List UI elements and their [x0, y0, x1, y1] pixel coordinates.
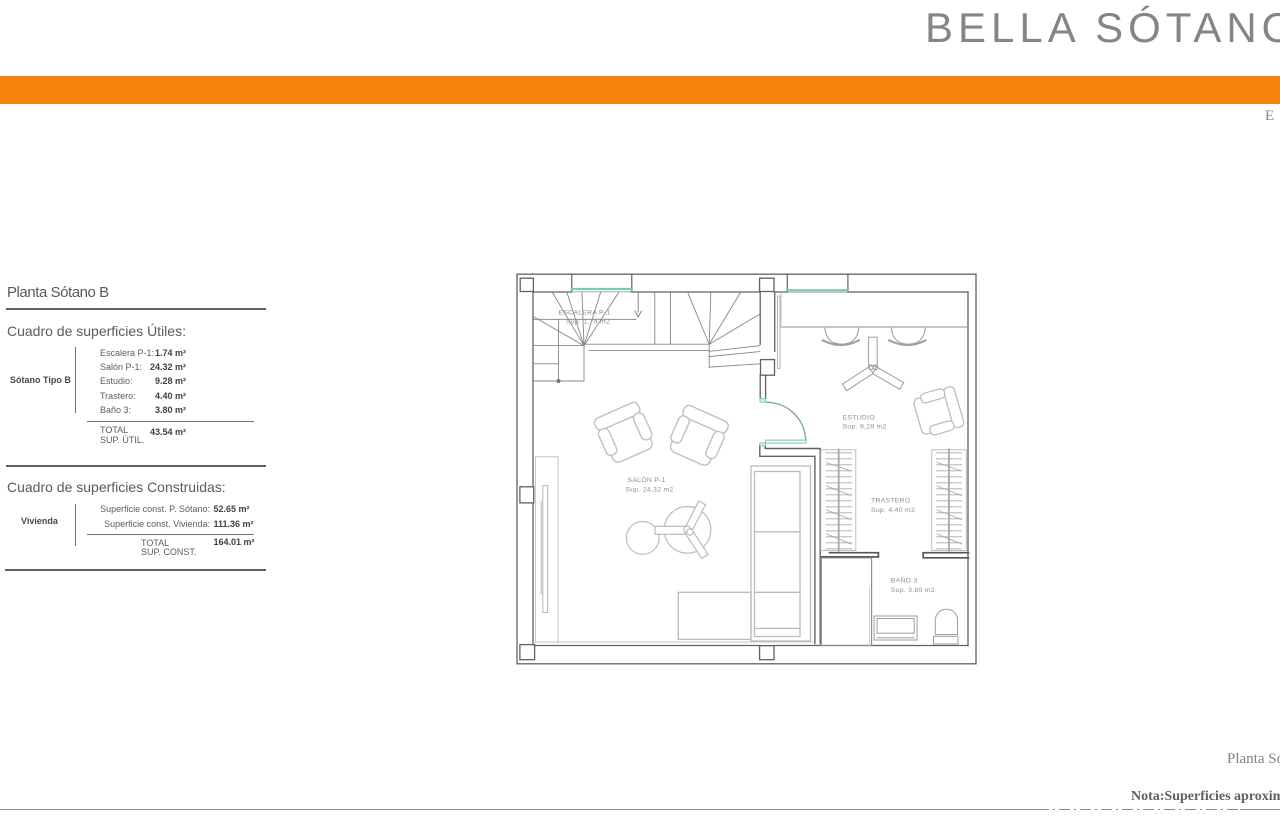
svg-text:ESCALERA P-1: ESCALERA P-1: [559, 310, 611, 317]
svg-text:Sup. 3,80 m2: Sup. 3,80 m2: [891, 587, 935, 594]
svg-text:TRASTERO: TRASTERO: [871, 498, 910, 505]
svg-text:Sup. 9,28 m2: Sup. 9,28 m2: [843, 424, 887, 431]
svg-text:SALÓN P-1: SALÓN P-1: [628, 475, 666, 484]
svg-text:ESTUDIO: ESTUDIO: [843, 414, 875, 421]
svg-text:BAÑO 3: BAÑO 3: [891, 576, 918, 585]
svg-text:Sup. 1,74 m2: Sup. 1,74 m2: [566, 319, 610, 326]
svg-text:Sup. 24,32 m2: Sup. 24,32 m2: [625, 486, 673, 493]
svg-text:Sup. 4,40 m2: Sup. 4,40 m2: [871, 507, 915, 514]
